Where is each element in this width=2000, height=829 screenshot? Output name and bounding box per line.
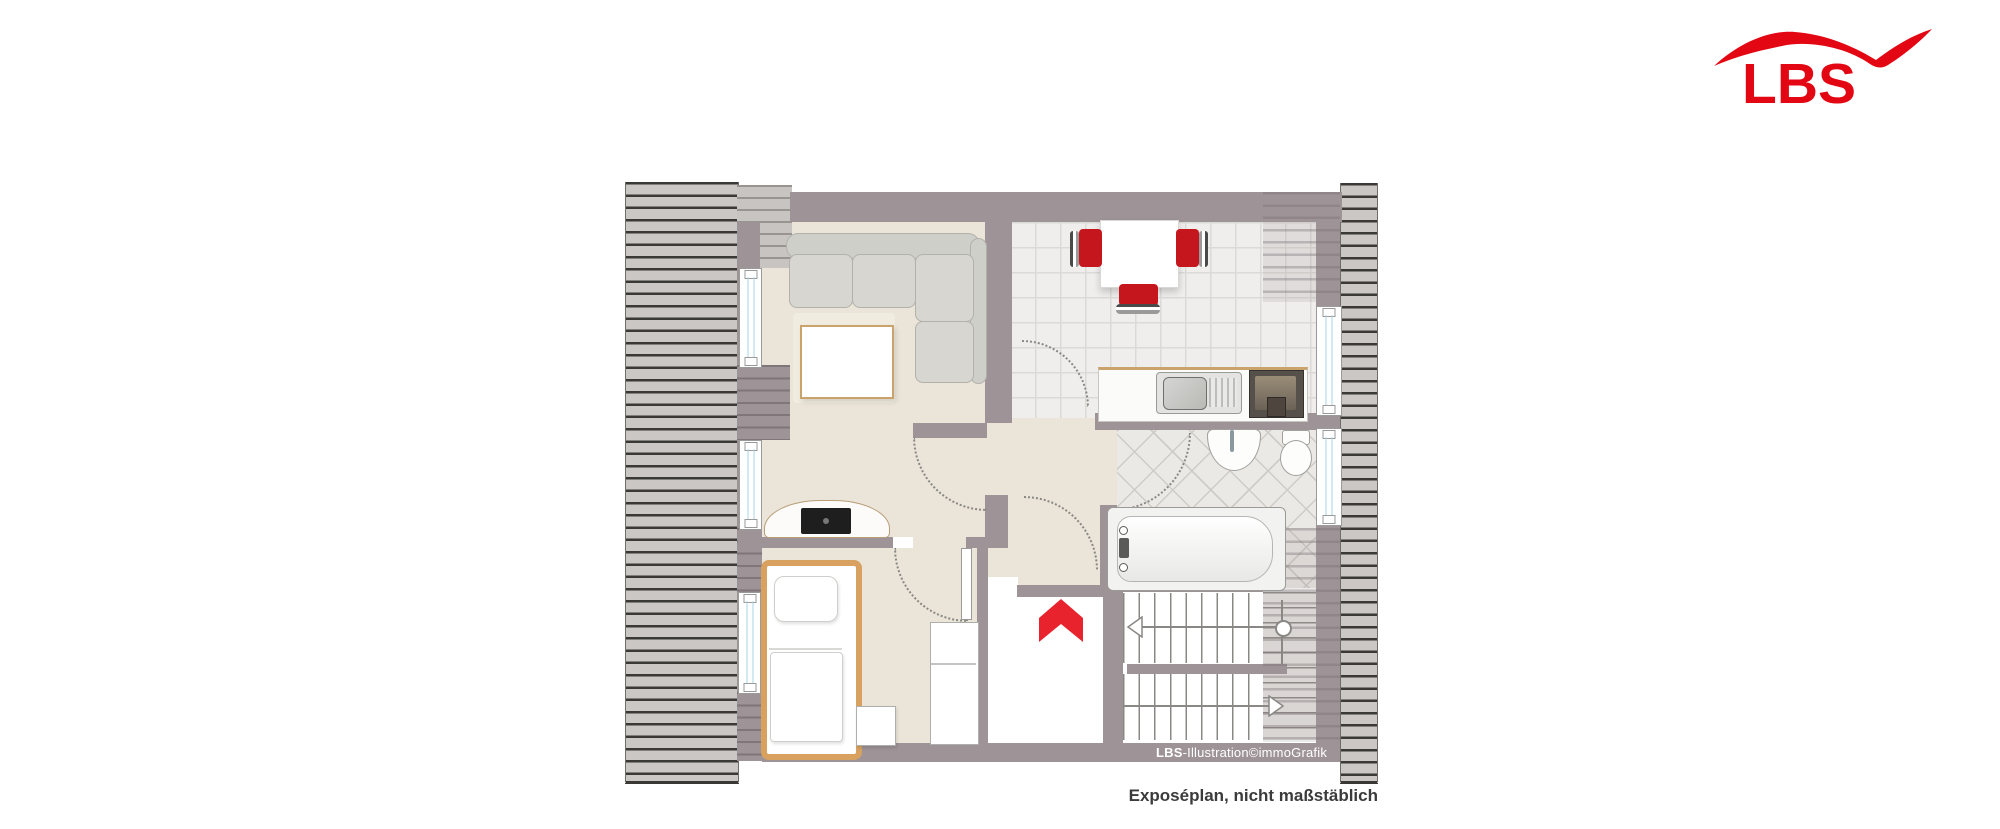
window-glazing bbox=[747, 277, 754, 359]
lbs-logo-text: LBS bbox=[1742, 56, 1856, 113]
sofa-seat-1 bbox=[789, 254, 853, 308]
kitchen-sink bbox=[1156, 372, 1242, 414]
bathtub-inner bbox=[1117, 516, 1273, 582]
wall-bedroom-east-stub bbox=[966, 537, 985, 548]
window-kitchen bbox=[1316, 306, 1342, 416]
bathtub bbox=[1107, 507, 1286, 591]
window-glazing bbox=[746, 601, 753, 685]
window-glazing bbox=[1326, 315, 1333, 407]
stairs-newel-circle bbox=[1275, 620, 1292, 637]
wall-living-kitchen bbox=[985, 222, 1012, 423]
tv bbox=[801, 508, 851, 534]
window-glazing bbox=[1326, 437, 1333, 517]
illustration-credit: LBS-Illustration©immoGrafik bbox=[1156, 745, 1327, 760]
chair-right-seat bbox=[1176, 229, 1199, 267]
bathtub-handle-2 bbox=[1119, 563, 1128, 572]
chair-bottom-seat bbox=[1119, 284, 1158, 306]
chair-right-back bbox=[1199, 231, 1208, 267]
window-living-1 bbox=[739, 268, 762, 368]
sink-drainer bbox=[1209, 378, 1237, 407]
bed-duvet bbox=[770, 652, 843, 742]
wall-entrance bbox=[1017, 585, 1103, 597]
expose-note: Exposéplan, nicht maßstäblich bbox=[998, 786, 1378, 806]
sofa-seat-3 bbox=[915, 321, 974, 383]
bathtub-faucet bbox=[1119, 538, 1129, 558]
tv-logo-dot bbox=[823, 518, 829, 524]
roof-hatch-left bbox=[625, 182, 739, 784]
wall-top bbox=[790, 192, 1342, 222]
stairs-walkline-lower bbox=[1123, 705, 1270, 707]
roof-hatch-right bbox=[1340, 183, 1378, 784]
bed bbox=[761, 560, 862, 760]
wall-stairwell-stairs bbox=[1103, 588, 1123, 760]
toilet-bowl bbox=[1280, 440, 1312, 476]
stairs-arrow-up-icon bbox=[1267, 695, 1285, 717]
wall-hall-corner-block bbox=[985, 495, 1008, 548]
kitchen-table bbox=[1100, 220, 1179, 288]
wall-stairs-mid bbox=[1127, 664, 1287, 674]
sofa-seat-corner bbox=[915, 254, 974, 322]
window-bedroom bbox=[738, 592, 761, 694]
window-glazing bbox=[747, 449, 754, 521]
stairs-upper-flight bbox=[1123, 593, 1263, 663]
bed-sheet-line bbox=[769, 648, 842, 650]
entrance-arrow-icon bbox=[1039, 599, 1083, 643]
chair-left-back bbox=[1070, 231, 1079, 267]
lbs-logo: LBS bbox=[1692, 16, 1960, 120]
bathtub-handle-1 bbox=[1119, 526, 1128, 535]
appliance-drain bbox=[1267, 397, 1286, 417]
credit-lbs: LBS bbox=[1156, 745, 1183, 760]
credit-rest: -Illustration©immoGrafik bbox=[1183, 745, 1327, 760]
door-leaf-bedroom bbox=[961, 548, 972, 620]
wall-living-bedroom bbox=[738, 537, 893, 548]
stairs-walkline-upper bbox=[1140, 626, 1283, 628]
sink-basin bbox=[1163, 377, 1207, 410]
bed-pillow bbox=[774, 576, 838, 622]
wardrobe-divider bbox=[931, 663, 976, 665]
stairs-lower-flight bbox=[1123, 674, 1263, 740]
washbasin-faucet bbox=[1230, 430, 1234, 452]
wall-living-hall-stub bbox=[913, 423, 987, 438]
kitchen-basin-appliance bbox=[1249, 370, 1304, 418]
floorplan-page: LBS-Illustration©immoGrafik Exposéplan, … bbox=[0, 0, 2000, 829]
chair-left-seat bbox=[1079, 229, 1102, 267]
coffee-table bbox=[800, 325, 894, 399]
sofa-seat-2 bbox=[852, 254, 916, 308]
stairs-arrow-down-icon bbox=[1126, 616, 1144, 638]
window-living-2 bbox=[739, 440, 762, 530]
bedside-table bbox=[856, 706, 896, 746]
wardrobe bbox=[930, 622, 979, 745]
wall-pier-left-1 bbox=[737, 365, 790, 440]
window-bathroom bbox=[1316, 428, 1342, 526]
chair-bottom-back bbox=[1116, 304, 1160, 314]
